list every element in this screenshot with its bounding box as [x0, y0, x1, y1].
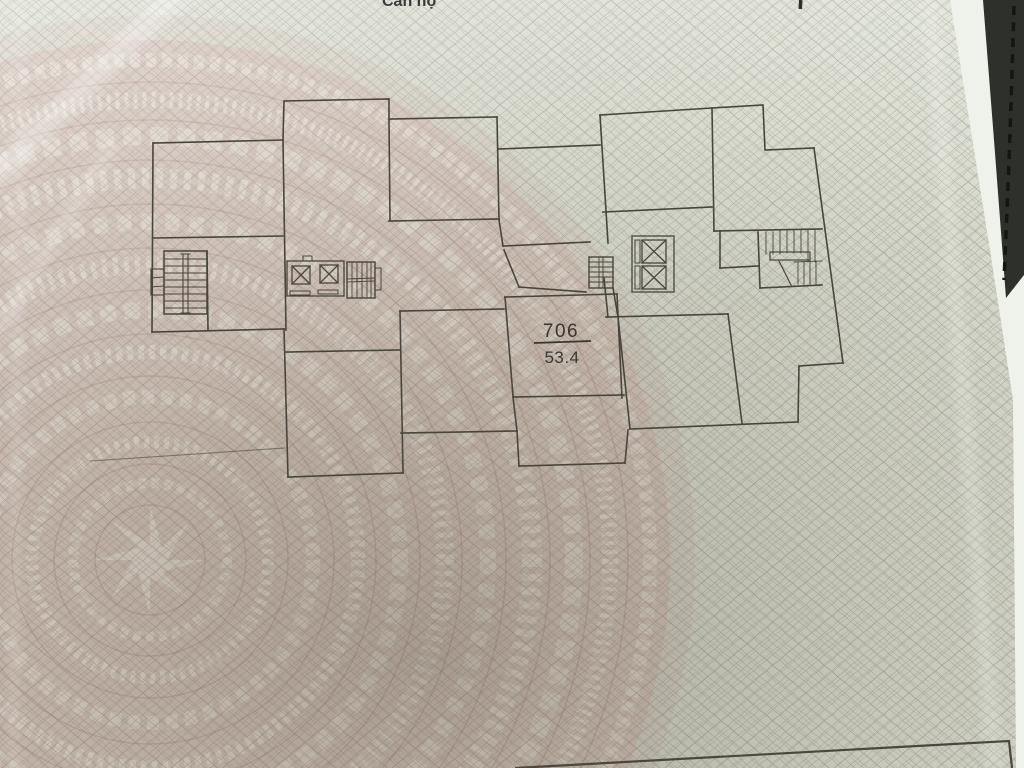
header-text-partial: Căn hộ: [382, 0, 436, 10]
room-area-label: 53.4: [544, 348, 579, 367]
room-number-label: 706: [543, 321, 579, 342]
top-edge-mark: [799, 0, 803, 9]
photographed-document: 706 53.4 Căn hộ: [0, 0, 1024, 768]
document-canvas: 706 53.4 Căn hộ: [0, 0, 1024, 768]
